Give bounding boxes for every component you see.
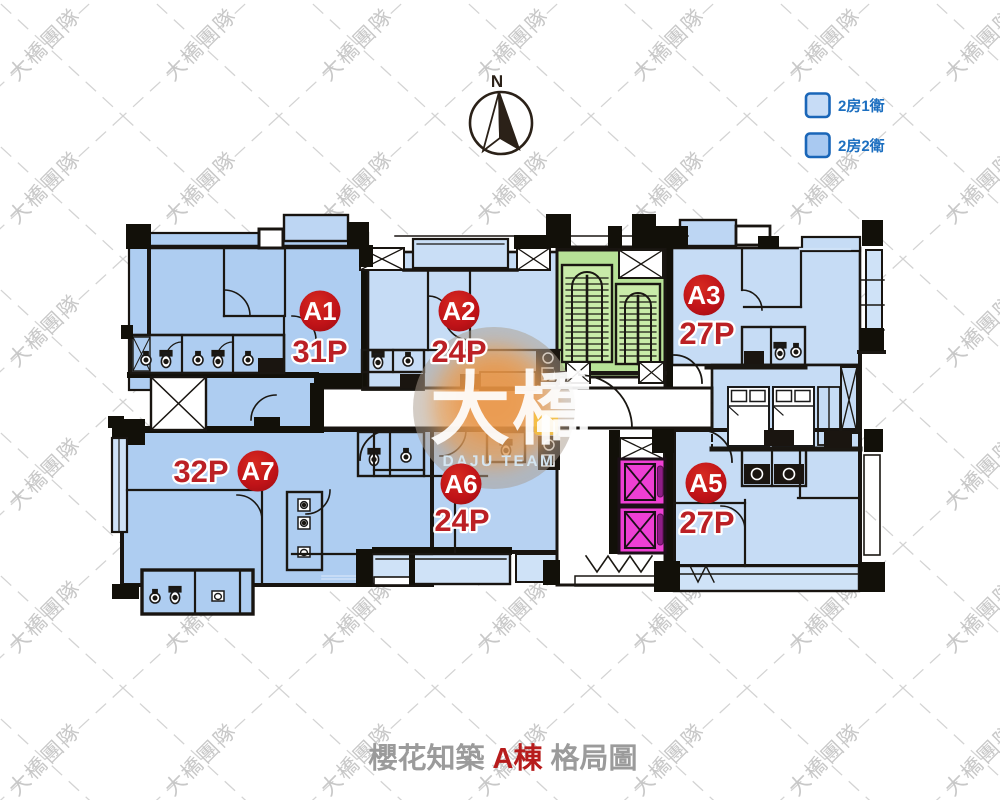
svg-text:A7: A7 xyxy=(241,456,274,486)
svg-text:24P: 24P xyxy=(434,503,489,538)
svg-text:A3: A3 xyxy=(687,280,720,310)
svg-text:大橋: 大橋 xyxy=(430,365,594,454)
svg-text:A2: A2 xyxy=(442,296,475,326)
svg-text:A6: A6 xyxy=(444,469,477,499)
svg-text:27P: 27P xyxy=(679,505,734,540)
svg-text:2房1衛: 2房1衛 xyxy=(838,98,885,115)
svg-text:N: N xyxy=(491,72,503,91)
svg-text:31P: 31P xyxy=(292,334,347,369)
svg-text:27P: 27P xyxy=(679,316,734,351)
svg-text:A5: A5 xyxy=(689,468,722,498)
svg-text:櫻花知築 A棟 格局圖: 櫻花知築 A棟 格局圖 xyxy=(367,742,637,775)
svg-text:24P: 24P xyxy=(431,334,486,369)
svg-text:32P: 32P xyxy=(173,454,228,489)
svg-text:A1: A1 xyxy=(303,296,336,326)
svg-text:2房2衛: 2房2衛 xyxy=(838,138,885,155)
